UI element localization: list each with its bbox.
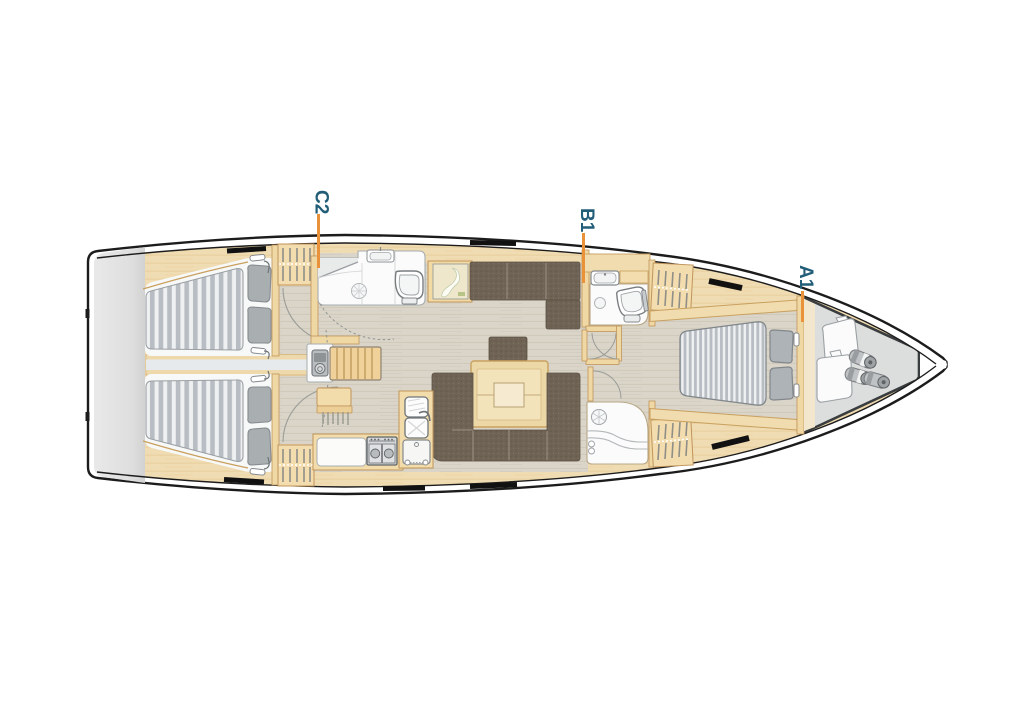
- svg-text:A1: A1: [795, 265, 816, 290]
- svg-text:C2: C2: [311, 190, 332, 214]
- svg-text:B1: B1: [576, 208, 597, 233]
